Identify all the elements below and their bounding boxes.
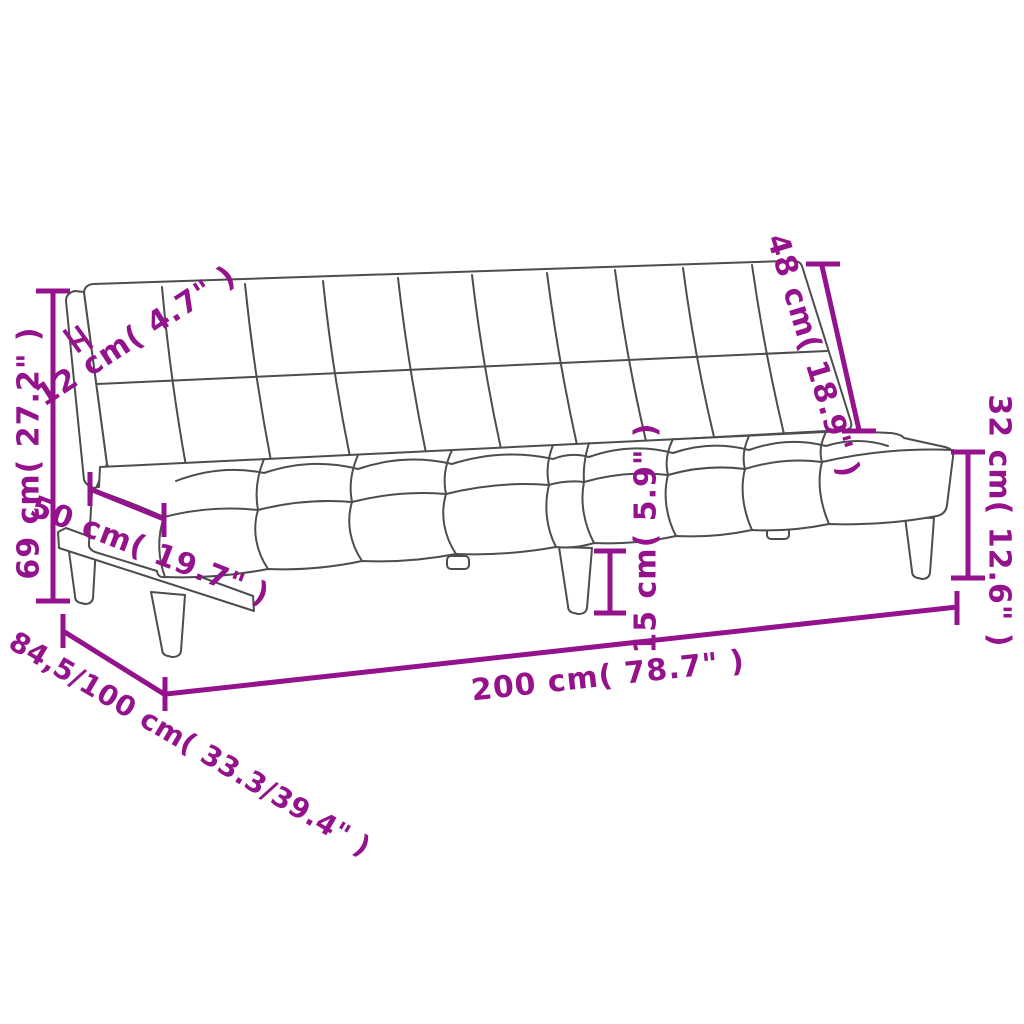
dimension-leg-height-line <box>594 551 626 613</box>
rear-right-leg <box>905 517 934 579</box>
dimension-overall-height-label: 69 cm( 27.2" ) <box>12 326 47 579</box>
dimension-overall-depth-label: 84,5/100 cm( 33.3/39.4" ) <box>3 625 376 863</box>
dimension-leg-height-label: 15 cm( 5.9" ) <box>629 422 664 653</box>
dimension-seat-height-label: 32 cm( 12.6" ) <box>982 394 1017 647</box>
middle-leg <box>559 547 592 614</box>
product-dimension-diagram: 69 cm( 27.2" ) 12 cm( 4.7" ) 50 cm( 19.7… <box>0 0 1024 1024</box>
dimension-overall-width-label: 200 cm( 78.7" ) <box>469 644 746 709</box>
sofa-dimension-drawing: 69 cm( 27.2" ) 12 cm( 4.7" ) 50 cm( 19.7… <box>0 0 1024 1024</box>
dimension-seat-height-line <box>951 452 985 578</box>
rear-foot-left <box>447 556 469 569</box>
front-left-leg <box>151 592 185 657</box>
